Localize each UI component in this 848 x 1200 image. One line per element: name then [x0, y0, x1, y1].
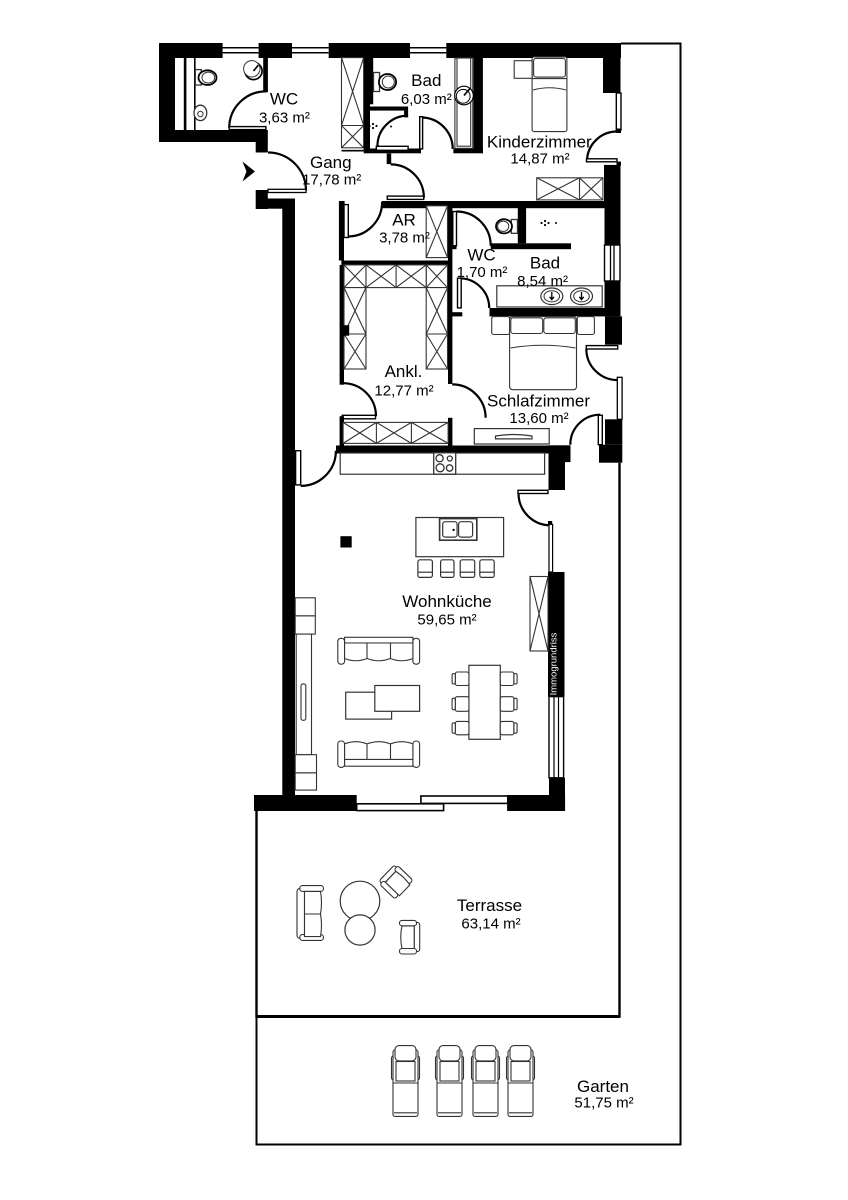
- svg-text:59,65 m²: 59,65 m²: [417, 612, 476, 629]
- svg-text:14,87 m²: 14,87 m²: [510, 151, 569, 168]
- svg-text:8,54 m²: 8,54 m²: [517, 273, 568, 290]
- svg-text:12,77 m²: 12,77 m²: [374, 383, 433, 400]
- svg-text:WC: WC: [270, 90, 298, 109]
- svg-text:6,03 m²: 6,03 m²: [401, 91, 452, 108]
- svg-text:13,60 m²: 13,60 m²: [509, 410, 568, 427]
- svg-text:Terrasse: Terrasse: [457, 896, 522, 915]
- svg-text:Ankl.: Ankl.: [385, 362, 423, 381]
- svg-text:Kinderzimmer: Kinderzimmer: [487, 133, 592, 152]
- svg-text:63,14 m²: 63,14 m²: [461, 916, 520, 933]
- svg-text:Immogrundriss: Immogrundriss: [549, 632, 560, 695]
- svg-text:Wohnküche: Wohnküche: [402, 592, 491, 611]
- svg-text:1,70 m²: 1,70 m²: [457, 264, 508, 281]
- svg-text:17,78 m²: 17,78 m²: [302, 172, 361, 189]
- svg-text:Schlafzimmer: Schlafzimmer: [487, 392, 590, 411]
- svg-text:Bad: Bad: [411, 71, 441, 90]
- svg-text:Gang: Gang: [310, 153, 352, 172]
- svg-text:3,63 m²: 3,63 m²: [259, 110, 310, 127]
- svg-text:Bad: Bad: [530, 254, 560, 273]
- svg-text:AR: AR: [392, 211, 416, 230]
- svg-text:Garten: Garten: [577, 1077, 629, 1096]
- svg-text:3,78 m²: 3,78 m²: [379, 230, 430, 247]
- svg-text:WC: WC: [467, 245, 495, 264]
- svg-text:51,75 m²: 51,75 m²: [574, 1095, 633, 1112]
